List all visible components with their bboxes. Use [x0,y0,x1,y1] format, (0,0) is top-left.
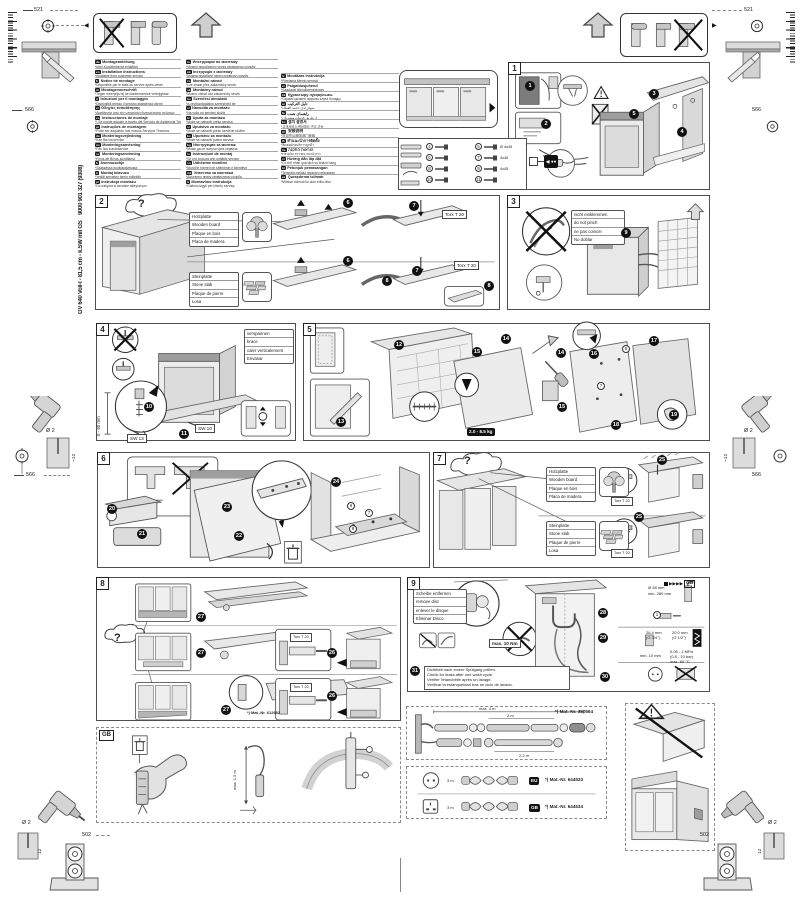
language-entry: mkУпатство за монтажа *Достапно преку се… [186,169,278,178]
stone-label: SteinplatteStone slabPlaque de pierreLos… [546,521,596,556]
cord-eu-mat-nr: *) Mat.-Nr. 644533 [545,778,583,783]
dim-521-left: 521 [34,7,43,13]
language-code-badge: hu [186,97,192,101]
language-entry: csMontážní návod *Lze získat přes zákazn… [186,77,278,86]
part-number: 9 [475,165,482,172]
language-code-badge: lt [186,180,190,184]
torx-label: Torx T 20 [454,261,479,270]
language-code-badge: nl [95,88,100,92]
drain-min-height: min. 280 mm [648,592,671,597]
language-code-badge: bg [186,143,192,147]
screw-icon [483,154,499,162]
screw-icon [483,176,499,184]
brace-label: verspannenbracecaler verticalementEnvasa… [244,329,294,364]
temp-max: max. 60 °C [670,660,690,665]
language-entry: deMontageanleitung *über Kundendienst er… [95,59,181,68]
part-number: 4 [426,143,433,150]
language-code-badge: ko [281,120,287,124]
step-marker: 23 [222,502,232,512]
drill-mark-icon [766,120,779,133]
panel1-parts-list: 4 5 Ø 4x45 6 [398,138,527,190]
hole-dia-br: Ø 2 [768,820,777,826]
part-ref: 1 [653,611,661,619]
panel-4: 4 verspannenbracecaler verticalementEnva… [96,323,296,441]
cord-gb-region: GB [529,804,540,812]
language-list-col3: lvMontāžas instrukcija *Pieejama klientu… [281,73,399,183]
legend-target-box [529,157,538,166]
cord-gb-mat-nr: *) Mat.-Nr. 644534 [545,805,583,810]
conn-12-inch: (G 1/2") [672,636,686,641]
language-code-badge: ar [281,102,286,106]
language-code-badge: ru [186,60,191,64]
language-entry: trMontaj kılavuzu *Yetkili servisten tem… [95,169,181,178]
step-marker: 4 [677,127,687,137]
language-code-badge: he [281,148,287,152]
mounting-strips-icon [399,139,425,189]
dim-dashes [44,475,70,476]
language-entry: zh安装说明 *可向售后服务部门索取 [281,128,399,137]
language-entry: viHướng dẫn lắp đặt *Có thể nhận qua dịc… [281,156,399,165]
part-item: 10 [426,174,475,185]
language-code-badge: no [95,143,101,147]
step-marker: 18 [611,420,621,430]
screw-icon [434,165,450,173]
torx-label: Torx T 20 [611,497,633,506]
panel-number: 8 [96,577,109,590]
part-item: 8 [426,163,475,174]
language-code-badge: en [95,70,101,74]
dim-arrow [23,10,33,11]
step-marker: 6 [343,198,353,208]
step-marker: 9 [621,228,631,238]
step-marker: 10 [144,402,154,412]
part-number: 7 [475,154,482,161]
language-entry: srUputstvo za montažu *Može se nabaviti … [186,123,278,132]
part-item: 4 [426,141,475,152]
dim-arrow [14,475,24,476]
step-marker: 21 [137,529,147,539]
language-code-badge: fr [95,79,99,83]
language-entry: svMonteringsanvisning *Finns att få hos … [95,151,181,160]
pointer-left-icon: ◀ [84,23,89,29]
bricks-icon [242,272,272,302]
language-entry: esInstrucciones de montaje *) Se puede a… [95,114,181,123]
dim-521-right: 521 [744,7,753,13]
language-entry: ruИнструкция по монтажу *Можно приобрест… [186,59,278,68]
gap-min: min. 10 mm [640,654,661,659]
language-list-col2: ruИнструкция по монтажу *Можно приобрест… [186,59,278,188]
drill-hole-detail-right [708,396,788,486]
drill-mark-icon [41,19,55,33]
language-entry: ptInstruções de montagem *Pode ser adqui… [95,123,181,132]
panel2-art [96,196,499,309]
hose-seg2-length: 2.2 m [519,754,529,759]
dim-dashes [96,835,110,836]
question-cloud: ? [464,455,471,467]
part-item: 7 4x45 [475,152,524,163]
language-entry: faراهنمای نصب *از طریق خدمات مشتریان [281,110,399,119]
step-marker: 7 [412,266,422,276]
language-code-badge: bs [186,134,192,138]
question-cloud: ? [138,198,145,210]
part-number: 10 [426,176,433,183]
torx-label: Torx T 20 [290,633,312,642]
language-entry: frNotice de montage *Disponible par le b… [95,77,181,86]
hole-dia-bl: Ø 2 [22,820,31,826]
language-entry: ltMontavimo instrukcija *Galima įsigyti … [186,178,278,187]
part-item: 5 Ø 4x45 [475,141,524,152]
language-entry: hrUputa za montažu *Može se nabaviti pre… [186,114,278,123]
stone-label: SteinplatteStone slabPlaque de pierreLos… [189,272,239,307]
language-code-badge: ro [186,152,191,156]
screw-icon [434,176,450,184]
language-code-badge: zh [281,130,286,134]
panel-8: 8 ? Torx T 20 Torx T 20 *) Mat.-Nr. 6126… [96,577,401,721]
panel-1: 1 1 2 3 4 5 ◀ ●● [508,62,710,190]
step-marker: 6 [343,256,353,266]
fold-mark [400,858,401,892]
language-code-badge: sr [186,125,191,129]
language-code-badge: fa [281,111,286,115]
cord-eu-length: 3 m [447,779,454,784]
order-number-text: 9000 901 327 (9308) [78,165,84,215]
panel-number: 6 [97,452,110,465]
step-marker: 15 [472,347,482,357]
step-marker: 5 [629,109,639,119]
step-marker: 15 [557,402,567,412]
dim-dashes [712,10,742,11]
language-entry: ukІнструкція з монтажу *Можна придбати ч… [186,68,278,77]
wood-label: HolzplatteWooden boardPlaque en boisPlac… [546,467,596,502]
torx-label: Torx T 20 [442,210,467,219]
language-code-badge: pl [95,180,100,184]
panel8-art [97,578,400,720]
dim-566-mid-right: 566 [752,472,761,478]
step-marker: 3 [649,89,659,99]
forward-arrows-icon: ▶▶▶▶ [669,581,683,587]
power-cords-box: 3 m EU *) Mat.-Nr. 644533 3 m GB *) Mat.… [406,766,607,819]
language-entry: lvMontāžas instrukcija *Pieejama klientu… [281,73,399,82]
language-entry: bsUputstvo za montažu *Može se nabaviti … [186,133,278,142]
manual-page: 521 ◀ 566 521 ▶ 566 [0,0,802,898]
language-code-badge: uk [186,70,192,74]
hole-dia-left: Ø 2 [46,428,55,434]
step-marker: 14 [556,348,566,358]
language-code-badge: th [281,139,286,143]
panel-number: 3 [507,195,520,208]
arrow-up-icon [190,12,222,38]
door-warning-box [625,703,715,851]
dim-566-mid-left: 566 [26,472,35,478]
arrow-up-icon [582,12,614,38]
language-code-badge: az [281,175,286,179]
language-code-badge: sk [186,88,191,92]
language-entry: huSzerelési útmutató *A vevőszolgálaton … [186,96,278,105]
hole-depth-right: ~12 [724,442,729,462]
language-entry: bgИнструкция за монтаж *Може да се получ… [186,142,278,151]
language-code-badge: fi [95,161,99,165]
panel-7: 7 ? HolzplatteWooden boardPlaque en bois… [433,452,710,568]
ruler-right [786,12,795,64]
language-entry: itIstruzioni per il montaggio *Disponibi… [95,96,181,105]
document-id-vertical: GV 640 Voll-I - 81,5 cm - k.SW mit GS 90… [78,52,84,314]
language-entry: plInstrukcja montażu *Do nabycia w serwi… [95,178,181,187]
panel-5: 5 12 13 14 15 14 15 16 17 18 19 5 7 2.0 … [303,323,710,441]
hole-depth-left: ~12 [72,442,77,462]
hose-max-length: max. 4 m [479,707,495,712]
hose-seg-length: 2 m [507,714,514,719]
part-item: 11 [475,174,524,185]
cord-gb-length: 3 m [447,806,454,811]
question-cloud: ? [114,632,121,644]
drill-bracket-left [14,786,104,896]
dim-arrow [12,110,22,111]
language-code-badge: kk [281,93,286,97]
language-code-badge: de [95,60,101,64]
panel-9: 9 Scheibe entfernenremove discenlever le… [407,577,710,692]
tree-icon [242,212,272,242]
power-cords-art [407,767,606,818]
language-code-badge: tr [95,171,99,175]
language-entry: slNavodila za montažo *Na voljo pri serv… [186,105,278,114]
do-not-pinch-label: nicht einklemmendo not pinchne pas coinc… [571,210,625,245]
language-code-badge: sq [186,161,192,165]
gb-section-tag: GB [99,730,114,741]
dim-566-left: 566 [25,107,34,113]
language-entry: heהוראות התקנה *ניתן להשיג בשירות הלקוחו… [281,147,399,156]
torx-label: Torx T 20 [611,549,633,558]
step-marker: 27 [221,705,231,715]
drill-mark-icon [750,19,764,33]
step-marker: 31 [410,666,420,676]
part-number: 8 [426,165,433,172]
panel-number: 7 [433,452,446,465]
part-size: Ø 4x45 [500,145,512,149]
ruler-left [8,12,17,64]
panel-number: 4 [96,323,109,336]
step-marker: 19 [669,410,679,420]
part-size: 4x45 [500,167,508,171]
part-size: 4x45 [500,156,508,160]
language-code-badge: et [281,84,286,88]
conn-34-inch: (G 3/4") [646,636,660,641]
language-entry: arدليل التركيب *متوفر لدى خدمة العملاء [281,101,399,110]
part-number: 6 [426,154,433,161]
part-item: 6 [426,152,475,163]
step-marker: 13 [336,417,346,427]
language-code-badge: it [95,97,99,101]
language-entry: azQuraşdırma təlimatı *Müştəri xidməti i… [281,174,399,183]
language-code-badge: id [281,166,286,170]
step-marker: 25 [657,455,667,465]
language-code-badge: hr [186,116,191,120]
language-entry: kkҚұрастыру нұсқаулығы *Сервис қызметі а… [281,91,399,100]
step-marker: 22 [234,531,244,541]
panel1-art [509,63,709,189]
torque-label: max. 10 Nm [489,639,521,648]
language-code-badge: lv [281,74,286,78]
kitchen-overview-box [399,70,498,128]
part-ref: 6 [347,502,355,510]
sw10-label: SW 10 [195,424,215,433]
language-entry: ko설치 설명서 *고객서비스센터에서 구입 가능 [281,119,399,128]
door-weight-chip: 2.0 - 8.5 kg [467,428,495,436]
language-entry: thคำแนะนำการติดตั้ง *ติดต่อฝ่ายบริการลูก… [281,137,399,146]
language-code-badge: pt [95,125,100,129]
hose-mat-nr: *) Mat.-Nr. 350564 [555,710,593,715]
screw-icon [483,165,499,173]
step-marker: 25 [634,512,644,522]
step-marker: 14 [501,334,511,344]
part-ref: 7 [597,382,605,390]
language-entry: sqUdhëzime montimi *Mund të merren në sh… [186,160,278,169]
door-warning-art [626,704,714,850]
language-code-badge: sl [186,106,191,110]
language-code-badge: sv [95,152,100,156]
dim-502-left: 502 [82,832,91,838]
panel-number: 2 [95,195,108,208]
screw-icon [483,143,499,151]
screw-icon [434,154,450,162]
part-number: 11 [475,176,482,183]
gb-cable-length: max. 1.5 m [233,762,238,790]
step-marker: 26 [327,648,337,658]
sw13-label: SW 13 [127,434,147,443]
step-marker: 29 [598,633,608,643]
language-code-badge: es [95,116,100,120]
language-entry: noMonteringsanvisning *Fås hos kundeserv… [95,142,181,151]
step-marker: 1 [525,81,535,91]
panel6-art [98,453,429,567]
countertop-profile-warning-left [93,13,177,53]
gb-wiring-panel: GB max. 1.5 m [96,727,401,823]
step-marker: 27 [196,648,206,658]
part-item: 9 4x45 [475,163,524,174]
panel-6: 6 20 21 22 23 24 6 7 8 [97,452,430,568]
wood-label: HolzplatteWooden boardPlaque en boisPlac… [189,212,239,247]
step-marker: 16 [589,349,599,359]
panel-2: 2 ? HolzplatteWooden boardPlaque en bois… [95,195,500,310]
pointer-right-icon: ▶ [712,23,717,29]
model-text: GV 640 Voll-I - 81,5 cm - k.SW mit GS [78,221,84,315]
step-marker: 2 [541,119,551,129]
screw-icon [434,143,450,151]
language-entry: fiAsennusohje *Saatavissa huoltopalvelus… [95,160,181,169]
hole-depth-br: 12 [758,836,763,854]
step-marker: 28 [598,608,608,618]
hole-dia-right: Ø 2 [744,428,753,434]
step-marker: 11 [179,429,189,439]
legend-feet-chip: ◀ ●● [544,155,558,168]
tree-icon [599,467,629,497]
language-entry: daMonteringsvejledning *Kan fås via serv… [95,133,181,142]
panel-number: 5 [303,323,316,336]
language-code-badge: cs [186,79,191,83]
part-ref: 7 [365,509,373,517]
hose-extension-box: max. 4 m 2 m *) Mat.-Nr. 350564 2.2 m [406,706,607,760]
step-marker: 8 [382,276,392,286]
language-entry: elΟδηγίες τοποθέτησης *Διατίθενται από τ… [95,105,181,114]
language-entry: etPaigaldusjuhend *Saadaval klienditeeni… [281,82,399,91]
cord-eu-region: EU [529,777,539,785]
torx-label: Torx T 20 [290,683,312,692]
language-entry: nlMontagevoorschrift *Tegen meerprijs bi… [95,87,181,96]
step-marker: 20 [107,504,117,514]
drill-mark-icon [26,120,39,133]
remove-disc-label: Scheibe entfernenremove discenlever le d… [413,589,467,624]
part-number: 5 [475,143,482,150]
gb-wiring-art [97,728,400,822]
step-marker: 7 [409,201,419,211]
range-0-60: 0 - 60 mm [97,394,102,436]
dim-566-right: 566 [752,107,761,113]
language-entry: idPetunjuk pemasangan *Tersedia melalui … [281,165,399,174]
bricks-icon [599,521,629,551]
step-marker: 12 [394,340,404,350]
language-list-col1: deMontageanleitung *über Kundendienst er… [95,59,181,188]
hole-depth-bl: 12 [38,836,43,854]
step-marker: 8 [484,281,494,291]
part-ref: 5 [622,345,630,353]
language-code-badge: vi [281,157,286,161]
step-marker: 27 [196,612,206,622]
dim-dashes [56,25,84,26]
language-entry: skMontážny návod *Možno získať cez zákaz… [186,87,278,96]
panel-3: 3 nicht einklemmendo not pinchne pas coi… [507,195,710,310]
dim-dashes [50,10,78,11]
step-marker: 17 [649,336,659,346]
dim-502-right: 502 [700,832,709,838]
gb-chip: GB [684,580,695,588]
part-ref: 8 [349,525,357,533]
mat-nr-612682: *) Mat.-Nr. 612682 [247,711,280,716]
counter-pencil-sketch [18,36,80,84]
language-entry: roInstrucţiuni de montaj *Se pot procura… [186,151,278,160]
language-entry: enInstallation instructions *Available f… [95,68,181,77]
step-marker: 24 [331,477,341,487]
step-marker: 30 [600,672,610,682]
counter-pencil-sketch [722,36,784,84]
language-code-badge: da [95,134,101,138]
square-bullet-icon [664,582,668,586]
panel-number: 1 [508,62,521,75]
language-code-badge: el [95,106,100,110]
language-code-badge: mk [186,171,192,175]
leak-check-note: Dichtheit nach einem Spülgang prüfen.Che… [424,666,570,690]
countertop-profile-warning-right [620,13,708,57]
gb-forward-ref: ▶▶▶▶ GB [664,580,695,588]
step-marker: 26 [327,691,337,701]
